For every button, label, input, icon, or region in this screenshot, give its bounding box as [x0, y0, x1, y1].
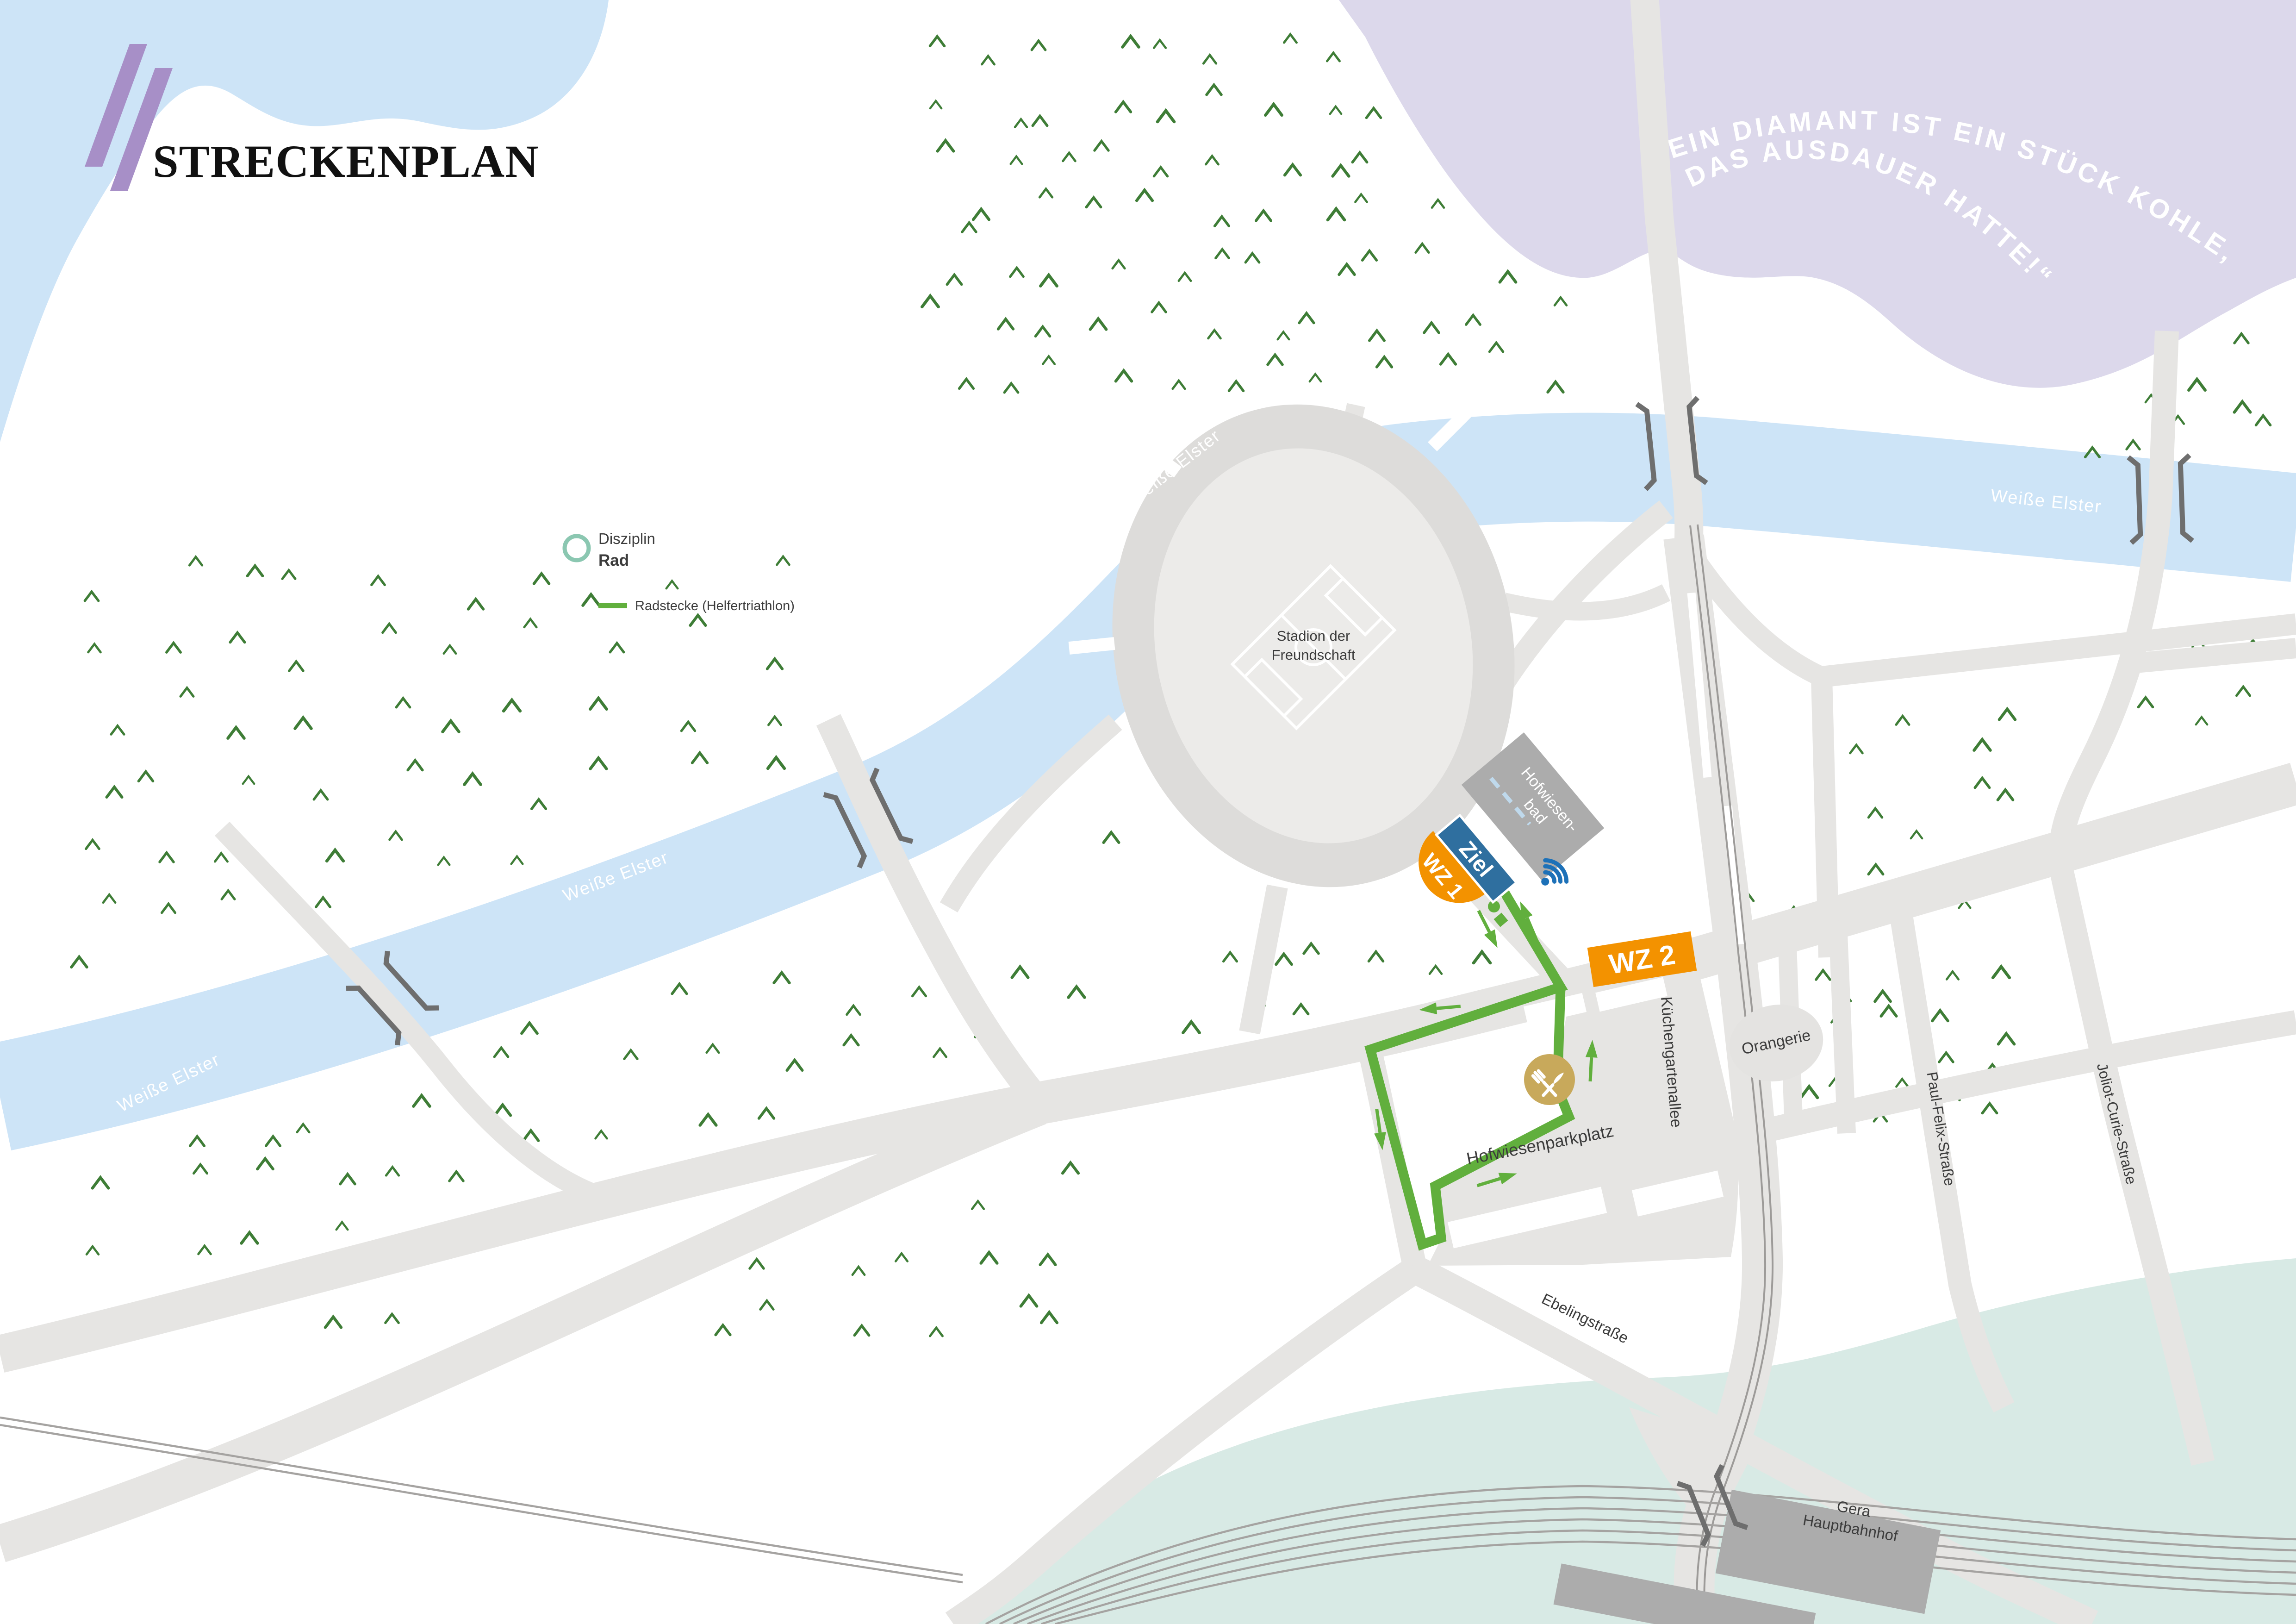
legend-route-label: Radstecke (Helfertriathlon) [635, 599, 795, 613]
logo-text: STRECKENPLAN [153, 136, 539, 187]
route-map-canvas: „EIN DIAMANT IST EIN STÜCK KOHLE, DAS AU… [0, 0, 2296, 1624]
legend-discipline-value: Rad [598, 551, 629, 569]
stadium-label: Stadion der [1277, 628, 1350, 644]
fork-knife-icon [1524, 1054, 1575, 1105]
svg-text:Freundschaft: Freundschaft [1272, 647, 1356, 663]
legend-discipline-label: Disziplin [598, 530, 655, 547]
